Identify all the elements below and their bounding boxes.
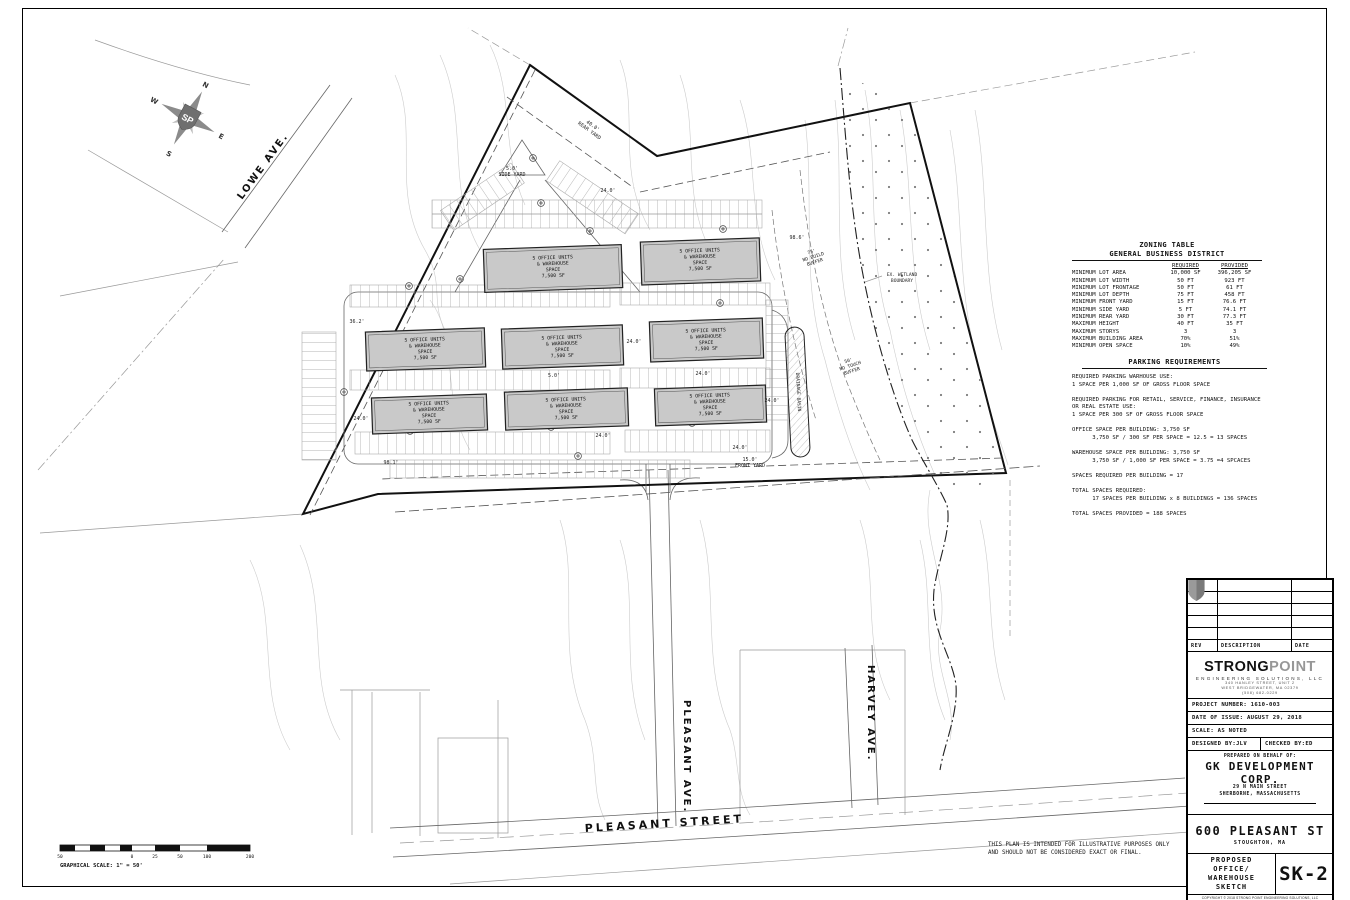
designed-by: DESIGNED BY:JLV <box>1188 738 1261 750</box>
svg-text:& WAREHOUSE: & WAREHOUSE <box>690 333 722 340</box>
building-6: 5 OFFICE UNITS & WAREHOUSE SPACE 7,500 S… <box>371 394 487 434</box>
zoning-item: MINIMUM FRONT YARD <box>1072 299 1164 306</box>
svg-text:BOUNDARY: BOUNDARY <box>891 278 913 284</box>
scale-caption: GRAPHICAL SCALE: 1" = 50' <box>60 863 143 869</box>
zoning-table: ZONING TABLE GENERAL BUSINESS DISTRICT R… <box>1072 241 1262 351</box>
logo-point: POINT <box>1269 659 1316 675</box>
lowe-ave-label: LOWE AVE. <box>236 131 292 202</box>
svg-text:5.0': 5.0' <box>548 373 560 379</box>
building-3: 5 OFFICE UNITS & WAREHOUSE SPACE 7,500 S… <box>365 328 485 371</box>
building-1: 5 OFFICE UNITS & WAREHOUSE SPACE 7,500 S… <box>483 245 622 293</box>
svg-text:24.0': 24.0' <box>695 371 710 377</box>
shield-icon <box>1188 580 1205 601</box>
svg-text:98.6': 98.6' <box>789 235 804 241</box>
svg-text:SPACE: SPACE <box>703 405 718 412</box>
svg-text:7,500 SF: 7,500 SF <box>414 355 437 362</box>
zoning-item: MAXIMUM STORYS <box>1072 329 1164 336</box>
zoning-item: MINIMUM LOT AREA <box>1072 270 1164 277</box>
svg-text:24.0': 24.0' <box>732 445 747 451</box>
zoning-item: MAXIMUM HEIGHT <box>1072 321 1164 328</box>
zoning-item: MINIMUM OPEN SPACE <box>1072 343 1164 350</box>
project-address: 600 PLEASANT ST STOUGHTON, MA <box>1188 815 1332 854</box>
svg-text:24.0': 24.0' <box>764 398 779 404</box>
compass-e: E <box>217 132 225 141</box>
svg-text:0: 0 <box>131 854 134 860</box>
svg-text:7,500 SF: 7,500 SF <box>551 353 574 360</box>
svg-text:SPACE: SPACE <box>555 347 570 354</box>
svg-text:98.1': 98.1' <box>383 460 398 466</box>
buildings: 5 OFFICE UNITS & WAREHOUSE SPACE 7,500 S… <box>365 238 766 434</box>
sheet-number: SK-2 <box>1276 854 1332 894</box>
zoning-subtitle: GENERAL BUSINESS DISTRICT <box>1072 250 1262 259</box>
description-col-header: DESCRIPTION <box>1218 640 1292 652</box>
zoning-item: MINIMUM LOT DEPTH <box>1072 292 1164 299</box>
svg-text:24.0': 24.0' <box>595 433 610 439</box>
svg-text:SPACE: SPACE <box>422 413 437 420</box>
compass-n: N <box>201 80 210 90</box>
svg-text:FRONT YARD: FRONT YARD <box>735 463 765 469</box>
abutting-parcel-lines <box>38 28 1195 838</box>
svg-text:SPACE: SPACE <box>418 349 433 356</box>
parking-title: PARKING REQUIREMENTS <box>1082 358 1267 369</box>
svg-text:36.2': 36.2' <box>349 319 364 325</box>
plan-sheet: DRAINAGE BASIN 5 OFFICE UNITS & WAREHOUS… <box>0 0 1350 900</box>
title-block: REV DESCRIPTION DATE STRONGPOINT ENGINEE… <box>1186 578 1334 900</box>
harvey-ave-label: HARVEY AVE. <box>865 665 876 762</box>
scale-bar: 50 0 25 50 100 200 GRAPHICAL SCALE: 1" =… <box>57 845 254 869</box>
svg-text:& WAREHOUSE: & WAREHOUSE <box>684 253 716 260</box>
svg-text:100: 100 <box>203 854 211 860</box>
svg-text:& WAREHOUSE: & WAREHOUSE <box>413 406 445 413</box>
svg-text:7,500 SF: 7,500 SF <box>699 411 722 418</box>
scale-note: SCALE: AS NOTED <box>1188 725 1332 738</box>
zoning-item: MINIMUM SIDE YARD <box>1072 307 1164 314</box>
building-7: 5 OFFICE UNITS & WAREHOUSE SPACE 7,500 S… <box>504 388 628 430</box>
copyright-note: COPYRIGHT © 2018 STRONG POINT ENGINEERIN… <box>1188 894 1332 900</box>
svg-text:24.0': 24.0' <box>626 339 641 345</box>
svg-text:7,500 SF: 7,500 SF <box>555 415 578 422</box>
project-number: PROJECT NUMBER: 1610-003 <box>1188 699 1332 712</box>
disclaimer-note: THIS PLAN IS INTENDED FOR ILLUSTRATIVE P… <box>988 841 1188 857</box>
zoning-title: ZONING TABLE <box>1072 241 1262 250</box>
svg-text:50: 50 <box>57 854 63 860</box>
zoning-item: MINIMUM LOT FRONTAGE <box>1072 285 1164 292</box>
zoning-item: MINIMUM REAR YARD <box>1072 314 1164 321</box>
svg-text:7,500 SF: 7,500 SF <box>542 273 565 280</box>
svg-text:25: 25 <box>152 854 158 860</box>
company-logo: STRONGPOINT ENGINEERING SOLUTIONS, LLC 3… <box>1188 652 1332 699</box>
client-name: GK DEVELOPMENT <box>1188 761 1332 772</box>
svg-text:200: 200 <box>246 854 254 860</box>
rev-col-header: REV <box>1188 640 1218 652</box>
date-col-header: DATE <box>1292 640 1332 652</box>
wetland-boundary-label: EX. WETLAND <box>887 272 918 278</box>
building-2: 5 OFFICE UNITS & WAREHOUSE SPACE 7,500 S… <box>640 238 760 285</box>
svg-text:7,500 SF: 7,500 SF <box>689 266 712 273</box>
zoning-col-provided: PROVIDED <box>1207 263 1262 270</box>
parking-requirements: PARKING REQUIREMENTS REQUIRED PARKING WA… <box>1072 358 1277 518</box>
svg-text:SIDE YARD: SIDE YARD <box>498 172 525 178</box>
building-8: 5 OFFICE UNITS & WAREHOUSE SPACE 7,500 S… <box>654 385 766 426</box>
checked-by: CHECKED BY:ED <box>1261 738 1313 750</box>
date-of-issue: DATE OF ISSUE: AUGUST 29, 2018 <box>1188 712 1332 725</box>
zoning-col-required: REQUIRED <box>1164 263 1207 270</box>
sheet-title: PROPOSED OFFICE/ WAREHOUSE SKETCH <box>1188 854 1276 894</box>
svg-text:& WAREHOUSE: & WAREHOUSE <box>537 260 569 267</box>
zoning-item: MAXIMUM BUILDING AREA <box>1072 336 1164 343</box>
street-labels: LOWE AVE. PLEASANT STREET PLEASANT AVE. … <box>236 131 876 835</box>
svg-text:SPACE: SPACE <box>559 409 574 416</box>
svg-text:7,500 SF: 7,500 SF <box>695 346 718 353</box>
svg-text:SPACE: SPACE <box>546 267 561 274</box>
svg-text:SPACE: SPACE <box>693 260 708 267</box>
client-info: PREPARED ON BEHALF OF: GK DEVELOPMENT CO… <box>1188 751 1332 814</box>
north-arrow: SP N E S W <box>130 62 243 177</box>
zoning-item: MINIMUM LOT WIDTH <box>1072 278 1164 285</box>
svg-text:& WAREHOUSE: & WAREHOUSE <box>546 340 578 347</box>
svg-text:7,500 SF: 7,500 SF <box>418 419 441 426</box>
pleasant-ave-label: PLEASANT AVE. <box>681 700 692 813</box>
building-5: 5 OFFICE UNITS & WAREHOUSE SPACE 7,500 S… <box>649 318 763 362</box>
drainage-basin: DRAINAGE BASIN <box>785 327 811 458</box>
svg-text:& WAREHOUSE: & WAREHOUSE <box>694 398 726 405</box>
revision-table: REV DESCRIPTION DATE <box>1188 580 1332 652</box>
compass-s: S <box>165 149 173 158</box>
building-4: 5 OFFICE UNITS & WAREHOUSE SPACE 7,500 S… <box>501 325 623 369</box>
svg-text:SPACE: SPACE <box>699 340 714 347</box>
compass-w: W <box>149 96 160 107</box>
svg-text:50: 50 <box>177 854 183 860</box>
svg-text:& WAREHOUSE: & WAREHOUSE <box>550 402 582 409</box>
svg-text:24.0': 24.0' <box>353 416 368 422</box>
svg-text:24.0': 24.0' <box>600 188 615 194</box>
logo-strong: STRONG <box>1204 659 1269 675</box>
svg-text:& WAREHOUSE: & WAREHOUSE <box>409 342 441 349</box>
